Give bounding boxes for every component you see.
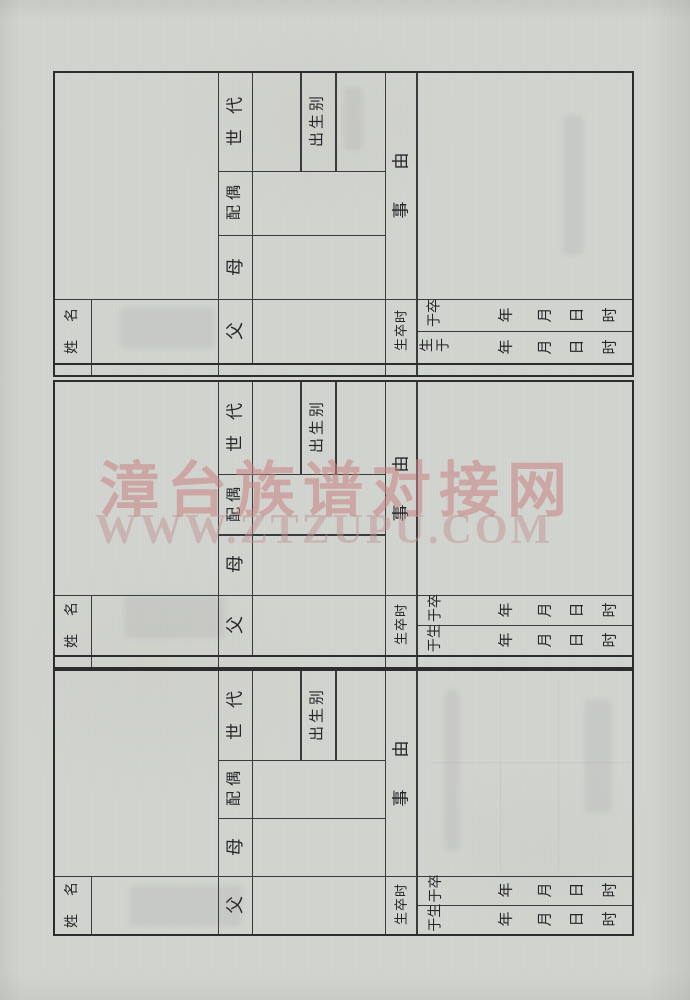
father-label-cell: 父	[218, 299, 252, 363]
month-label: 月	[538, 912, 553, 927]
spouse-label: 配偶	[227, 766, 242, 806]
record-grid: 姓名 父 母 配偶 世代 出生别 事由 生卒时	[53, 669, 634, 936]
grid-line	[91, 365, 93, 375]
born-on-label: 生于	[419, 340, 451, 354]
grid-line	[91, 657, 93, 667]
generation-label: 世代	[226, 82, 243, 146]
surname-name-label: 姓名	[66, 584, 80, 648]
born-on-label: 生于	[427, 626, 457, 654]
year-label: 年	[499, 602, 514, 617]
birth-death-time-label-cell: 生卒时	[385, 876, 417, 934]
birth-order-value-cell	[335, 671, 385, 760]
matter-label-cell: 事由	[385, 73, 417, 299]
surname-name-label-cell: 姓名	[55, 876, 91, 934]
mother-label-cell: 母	[218, 235, 252, 299]
mother-label-cell: 母	[218, 534, 252, 594]
father-value-cell	[252, 876, 385, 934]
spouse-label: 配偶	[227, 180, 242, 220]
hour-label: 时	[604, 912, 619, 927]
birth-order-value-cell	[335, 382, 385, 474]
genealogy-record-section: 姓名 父 母 配偶 世代 出生别 事由 生卒时	[53, 71, 634, 377]
hour-label: 时	[604, 339, 619, 354]
day-label: 日	[571, 307, 586, 322]
year-label: 年	[499, 339, 514, 354]
birth-death-time-label-cell: 生卒时	[385, 595, 417, 655]
father-value-cell	[252, 595, 385, 655]
birth-order-label-cell: 出生别	[300, 671, 335, 760]
birth-order-label: 出生别	[310, 93, 325, 147]
mother-value-cell	[252, 818, 385, 876]
generation-label-cell: 世代	[218, 73, 252, 171]
surname-name-label-cell: 姓名	[55, 595, 91, 655]
death-date-row: 卒于 年 月 日 时	[416, 299, 632, 331]
year-label: 年	[499, 912, 514, 927]
born-on-label: 生于	[428, 905, 457, 933]
spouse-label-cell: 配偶	[218, 171, 252, 235]
grid-line	[385, 657, 387, 667]
generation-value-cell	[252, 73, 301, 171]
father-label-cell: 父	[218, 595, 252, 655]
hour-label: 时	[604, 602, 619, 617]
section-strip	[53, 365, 634, 377]
birth-death-time-label: 生卒时	[394, 883, 407, 925]
mother-value-cell	[252, 235, 385, 299]
scanned-genealogy-page: 姓名 父 母 配偶 世代 出生别 事由 生卒时	[0, 0, 690, 1000]
grid-line	[218, 657, 220, 667]
birth-date-row: 生于 年 月 日 时	[416, 625, 632, 655]
month-label: 月	[538, 307, 553, 322]
blank-left-cell	[55, 382, 218, 595]
generation-label: 世代	[226, 388, 243, 452]
generation-label: 世代	[226, 676, 243, 740]
day-label: 日	[571, 339, 586, 354]
name-value-cell	[91, 876, 218, 934]
died-on-label: 卒于	[428, 876, 457, 904]
mother-label: 母	[226, 838, 244, 856]
year-label: 年	[499, 307, 514, 322]
record-grid: 姓名 父 母 配偶 世代 出生别 事由 生卒时	[53, 71, 634, 365]
generation-label-cell: 世代	[218, 671, 252, 760]
father-label: 父	[226, 616, 244, 634]
spouse-label-cell: 配偶	[218, 474, 252, 534]
died-on-label: 卒于	[427, 301, 459, 329]
matter-label-cell: 事由	[385, 382, 417, 595]
spouse-value-cell	[252, 760, 385, 818]
surname-name-label: 姓名	[66, 864, 80, 928]
spouse-label: 配偶	[227, 482, 242, 522]
month-label: 月	[538, 632, 553, 647]
grid-line	[416, 365, 418, 375]
blank-left-cell	[55, 671, 218, 876]
death-date-row: 卒于 年 月 日 时	[416, 876, 632, 905]
birth-order-label: 出生别	[310, 687, 325, 741]
day-label: 日	[571, 602, 586, 617]
spouse-value-cell	[252, 474, 385, 534]
birth-death-time-label: 生卒时	[394, 603, 407, 645]
birth-order-label-cell: 出生别	[300, 73, 335, 171]
birth-death-time-label: 生卒时	[394, 309, 407, 351]
mother-label-cell: 母	[218, 818, 252, 876]
grid-line	[385, 365, 387, 375]
year-label: 年	[499, 632, 514, 647]
hour-label: 时	[604, 307, 619, 322]
died-on-label: 卒于	[427, 596, 457, 624]
matter-label: 事由	[392, 708, 409, 806]
matter-label: 事由	[392, 423, 409, 521]
birth-date-row: 生于 年 月 日 时	[416, 331, 632, 363]
matter-value-cell	[416, 73, 632, 299]
birth-order-label-cell: 出生别	[300, 382, 335, 474]
birth-date-row: 生于 年 月 日 时	[416, 905, 632, 934]
generation-value-cell	[252, 382, 301, 474]
father-label-cell: 父	[218, 876, 252, 934]
father-label: 父	[226, 322, 244, 340]
day-label: 日	[571, 912, 586, 927]
genealogy-record-section: 姓名 父 母 配偶 世代 出生别 事由 生卒时	[53, 669, 634, 936]
month-label: 月	[538, 883, 553, 898]
generation-label-cell: 世代	[218, 382, 252, 474]
grid-line	[218, 365, 220, 375]
genealogy-record-section: 姓名 父 母 配偶 世代 出生别 事由 生卒时	[53, 380, 634, 669]
spouse-label-cell: 配偶	[218, 760, 252, 818]
birth-order-label: 出生别	[310, 399, 325, 453]
name-value-cell	[91, 299, 218, 363]
hour-label: 时	[604, 632, 619, 647]
mother-label: 母	[226, 555, 244, 573]
section-strip	[53, 657, 634, 669]
matter-label-cell: 事由	[385, 671, 417, 876]
surname-name-label-cell: 姓名	[55, 299, 91, 363]
surname-name-label: 姓名	[66, 290, 80, 354]
grid-line	[416, 657, 418, 667]
day-label: 日	[571, 883, 586, 898]
birth-death-time-label-cell: 生卒时	[385, 299, 417, 363]
day-label: 日	[571, 632, 586, 647]
hour-label: 时	[604, 883, 619, 898]
matter-label: 事由	[392, 121, 409, 219]
month-label: 月	[538, 602, 553, 617]
year-label: 年	[499, 883, 514, 898]
name-value-cell	[91, 595, 218, 655]
matter-value-cell	[416, 382, 632, 595]
father-label: 父	[226, 896, 244, 914]
death-date-row: 卒于 年 月 日 时	[416, 595, 632, 625]
record-grid: 姓名 父 母 配偶 世代 出生别 事由 生卒时	[53, 380, 634, 657]
mother-label: 母	[226, 258, 244, 276]
blank-left-cell	[55, 73, 218, 299]
month-label: 月	[538, 339, 553, 354]
matter-value-cell	[416, 671, 632, 876]
birth-order-value-cell	[335, 73, 385, 171]
father-value-cell	[252, 299, 385, 363]
generation-value-cell	[252, 671, 301, 760]
mother-value-cell	[252, 534, 385, 594]
spouse-value-cell	[252, 171, 385, 235]
